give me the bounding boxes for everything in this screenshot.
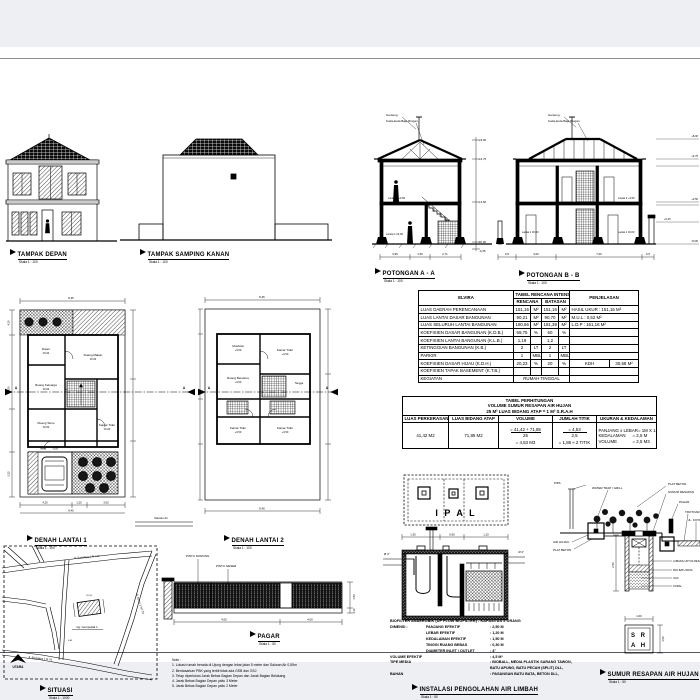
section-marker-icon xyxy=(10,249,16,255)
dim-label: 5,25 xyxy=(7,471,11,477)
view-title-text: DENAH LANTAI 1 xyxy=(35,538,87,546)
road-label: Jl. Asem 1 N / 23 xyxy=(135,593,145,615)
label-genteng: Genteng xyxy=(548,113,560,117)
ipal-plan-svg: I P A L xyxy=(400,471,512,529)
view-scale-text: Skala 1 : 50 xyxy=(259,643,280,647)
table-cell: M² xyxy=(559,306,570,314)
ipal-plan-drawing: I P A L xyxy=(400,471,512,529)
table-cell: 1,2 xyxy=(542,337,559,345)
fence-elevation-drawing: PINTU DORONG PINTU GESER 4,00 4,00 1,50 … xyxy=(160,545,375,637)
table-cell: M² xyxy=(559,321,570,329)
dim-label: 7,00 xyxy=(596,252,602,256)
road-label: Jl. Swadaya 1 N / 14 xyxy=(74,554,100,560)
table-cell: LUAS SELURUH LANTAI BANGUNAN xyxy=(419,321,514,329)
site-notes-block: Note : 1. Lokasi rumah berada di Ujung d… xyxy=(172,658,306,690)
footing-icon xyxy=(634,237,646,244)
section-marker-icon xyxy=(27,535,33,541)
north-label: UTARA xyxy=(13,665,25,669)
dim-label: 0,5 xyxy=(646,252,650,256)
section-a-drawing: Genteng Kuda-kuda Baja Ringan +8,00 +6,7… xyxy=(372,109,494,271)
table-cell: % xyxy=(559,329,570,337)
dim-label: 1,50 xyxy=(417,252,423,256)
view-title-denah2: DENAH LANTAI 2 Skala 1 : 100 xyxy=(224,529,284,550)
section-marker-icon xyxy=(600,669,606,675)
table-cell: LUAS LANTAI DASAR BANGUNAN xyxy=(419,314,514,322)
view-title-denah1: DENAH LANTAI 1 Skala 1 : 100 xyxy=(27,529,87,550)
table-cell: 30,58 M² xyxy=(610,360,639,368)
fraction-denominator: 25 xyxy=(511,432,541,439)
room-elev: +3,50 xyxy=(235,430,242,434)
leader-label: LOBANG UNTUK RESAPAN xyxy=(673,559,700,563)
dim-label: 4,00 xyxy=(307,618,313,622)
dim-label: 0,30 xyxy=(353,608,356,613)
footing-icon xyxy=(552,237,564,244)
dim-label: 1,50 xyxy=(352,594,356,600)
footing-icon xyxy=(592,237,604,244)
ukuran-val: = 2,5 M3 xyxy=(633,439,650,445)
srah-plan-letters: A H xyxy=(631,643,647,649)
srah-volume-table: TABEL PERHITUNGAN VOLUME SUMUR RESAPAN A… xyxy=(402,396,657,449)
table-header-cell: BATASAN xyxy=(542,298,570,306)
gate-label: PINTU DORONG xyxy=(186,554,210,558)
section-marker-icon xyxy=(412,684,418,690)
dim-label: 3,00 xyxy=(533,252,539,256)
dim-label: 2,71 xyxy=(442,252,448,256)
saluran-air-label: Saluran Air xyxy=(154,516,168,520)
drawing-sheet: Genteng Kuda-kuda Baja Ringan +8,00 +6,7… xyxy=(0,47,700,662)
site-plan-svg: Jl. Swadaya 1 N / 14 Jl. Asem 1 N / 23 J… xyxy=(2,542,168,687)
section-cut-letter: A xyxy=(326,386,329,390)
level-label: +8,00 xyxy=(691,134,698,138)
room-elev: ±0,00 xyxy=(43,387,50,391)
dim-label: 4,20 xyxy=(7,320,11,326)
biofilter-spec-block: BIOFILTER ANAEROBIK (UP FLOW BIOFILTER) … xyxy=(390,619,618,678)
room-label: Ruang Keluarga xyxy=(35,383,57,387)
leader-label: PIPA xyxy=(554,481,561,485)
table-cell xyxy=(559,337,570,345)
table-cell: KOEFISIEN TAPAK BASEMENT (K.T.B.) xyxy=(419,367,514,375)
room-label: Mushola xyxy=(232,344,244,348)
right-side-elevation-svg xyxy=(120,125,335,255)
view-title-text: POTONGAN A - A xyxy=(383,271,435,279)
dim-label: 2,50 xyxy=(611,562,615,568)
room-label: Dapur xyxy=(42,347,50,351)
room-elev: +3,50 xyxy=(282,430,289,434)
room-elev: -0,05 xyxy=(52,448,58,451)
intensity-table: ELVIRA TABEL RENCANA INTENSITAS PENJELAS… xyxy=(418,290,639,383)
table-cell: LT xyxy=(559,344,570,352)
view-title-tampak-samping: TAMPAK SAMPING KANAN Skala 1 : 100 xyxy=(140,243,229,264)
table-cell xyxy=(570,344,639,352)
table-cell: 20,23 xyxy=(514,360,531,368)
section-cut-letter: A xyxy=(15,386,18,390)
table-cell: KOEFISIEN LANTAI BANGUNAN (K.L.B.) xyxy=(419,337,514,345)
fraction-denominator: 2,5 xyxy=(563,432,587,439)
leader-label: PLAT BETON xyxy=(553,548,571,552)
view-title-text: POTONGAN B - B xyxy=(527,273,580,281)
site-plan-drawing: Jl. Swadaya 1 N / 14 Jl. Asem 1 N / 23 J… xyxy=(2,542,168,687)
srah-plan-letters: S R xyxy=(631,633,647,639)
dim-label: 8,45 xyxy=(68,509,74,513)
table-header-cell: VOLUME xyxy=(499,415,553,423)
table-cell: 90,70 xyxy=(542,314,559,322)
table-cell: % xyxy=(559,360,570,368)
table-cell xyxy=(570,352,639,360)
dim-label: 0,60 xyxy=(449,533,455,537)
view-title-tampak-depan: TAMPAK DEPAN Skala 1 : 100 xyxy=(10,243,67,264)
room-elev: +3,50 xyxy=(235,380,242,384)
section-cut-letter: A xyxy=(208,386,211,390)
label-lantai2: Lantai 2 +3,50 xyxy=(388,196,406,200)
view-scale-text: Skala 1 : 100 xyxy=(36,547,87,551)
table-cell: KETINGGIAN BANGUNAN (K.B.) xyxy=(419,344,514,352)
dim-label: 8,45 xyxy=(259,507,265,511)
screenshot-canvas: Genteng Kuda-kuda Baja Ringan +8,00 +6,7… xyxy=(0,0,700,700)
pipe-label: Ø 4" xyxy=(518,550,524,554)
dim-label: 1,30 xyxy=(410,533,416,537)
floor-plan-2-drawing: Mushola +3,50 Kamar Tidur +3,50 Ruang Be… xyxy=(198,289,338,534)
table-cell: KOEFISIEN DASAR BANGUNAN (K.D.B.) xyxy=(419,329,514,337)
room-label: Ruang Tamu xyxy=(38,421,55,425)
north-arrow-icon xyxy=(10,654,26,663)
view-title-text: INSTALASI PENGOLAHAN AIR LIMBAH xyxy=(420,687,539,695)
front-elevation-drawing xyxy=(5,125,120,255)
table-cell: 60 xyxy=(542,329,559,337)
room-label: Teras xyxy=(40,447,47,451)
gate-label: PINTU GESER xyxy=(216,564,237,568)
dim-label: 4,20 xyxy=(42,501,48,505)
table-cell: 59,75 xyxy=(514,329,531,337)
table-cell: M² xyxy=(531,321,542,329)
level-label: ±0,00 xyxy=(692,239,699,243)
view-scale-text: Skala 1 : 100 xyxy=(149,261,229,265)
room-elev: ±0,00 xyxy=(90,357,97,361)
table-cell: 2 xyxy=(542,344,559,352)
dim-label: 9,00 xyxy=(7,386,11,392)
label-lantai1: Lantai 1 ±0,00 xyxy=(522,230,539,234)
table-header-cell: JUMLAH TITIK xyxy=(553,415,597,423)
table-cell: 71,85 M2 xyxy=(449,423,499,449)
table-cell xyxy=(514,367,531,375)
leader-label: JL. KOTA xyxy=(688,518,700,522)
table-cell: M.U.L : 0,52 M² xyxy=(570,314,639,322)
dim-label: 1,00 xyxy=(661,636,665,642)
table-cell: MBL xyxy=(531,352,542,360)
table-title-line: 25 M² LUAS BIDANG ATAP = 1 M³ S.R.A.H xyxy=(405,409,655,415)
table-cell: = 41,42 + 71,85 25 = 4,53 M3 xyxy=(499,423,553,449)
leader-label: KORAL xyxy=(673,584,682,588)
dim-label: 8,45 xyxy=(68,296,74,300)
view-title-text: DENAH LANTAI 2 xyxy=(232,538,284,546)
view-title-text: PAGAR xyxy=(258,634,280,642)
section-cut-letter: A xyxy=(183,386,186,390)
label-kuda-kuda: Kuda-kuda Baja Ringan xyxy=(548,119,580,123)
table-cell: KEGIATAN xyxy=(419,375,514,383)
table-cell: 90,21 xyxy=(514,314,531,322)
view-scale-text: Skala 1 : 100 xyxy=(19,261,67,265)
room-label: Kamar Tidur xyxy=(277,426,293,430)
table-cell: L.D.P : 151,16 M² xyxy=(570,321,639,329)
table-cell: 1,19 xyxy=(514,337,531,345)
table-cell xyxy=(559,367,570,375)
sheet-top-rule xyxy=(0,58,700,59)
table-cell: % xyxy=(531,329,542,337)
label-genteng: Genteng xyxy=(386,113,398,117)
ukuran-name: VOLUME xyxy=(599,439,633,445)
table-cell xyxy=(542,367,559,375)
table-cell: KOEFISIEN DASAR HIJAU (K.D.H.) xyxy=(419,360,514,368)
view-scale-text: Skala 1 : 100 xyxy=(233,547,284,551)
table-cell: RUMAH TINGGAL xyxy=(514,375,570,383)
person-icon xyxy=(45,219,50,233)
section-marker-icon xyxy=(519,270,525,276)
front-elevation-svg xyxy=(5,125,120,255)
section-marker-icon xyxy=(250,631,256,637)
label-lantai1: Lantai 1 ±0,00 xyxy=(386,232,404,236)
fraction-numerator: = 41,42 + 71,85 xyxy=(501,427,551,433)
room-label: Tangga xyxy=(295,381,304,385)
ipal-section-svg: 1,30 0,60 1,10 Ø 4" Ø 4" xyxy=(383,523,525,625)
leader-label: WATER TRAP / GRILL xyxy=(592,486,623,490)
table-cell: MBL xyxy=(559,352,570,360)
view-title-text: TAMPAK DEPAN xyxy=(18,252,67,260)
view-scale-text: Skala 1 : 100 xyxy=(528,282,580,286)
table-header-cell: UKURAN & KEDALAMAN xyxy=(597,415,657,423)
room-label: Ruang Makan xyxy=(84,353,103,357)
section-a-svg: Genteng Kuda-kuda Baja Ringan +8,00 +6,7… xyxy=(372,109,494,271)
table-cell xyxy=(570,329,639,337)
table-cell xyxy=(531,337,542,345)
leader-label: PAS BATU BATA xyxy=(673,568,693,572)
dim-label: 0,5 xyxy=(505,252,509,256)
table-cell xyxy=(570,337,639,345)
table-cell: M² xyxy=(559,314,570,322)
section-marker-icon xyxy=(40,685,46,691)
table-title-cell: TABEL PERHITUNGAN VOLUME SUMUR RESAPAN A… xyxy=(403,397,657,416)
table-cell: 2 xyxy=(514,344,531,352)
leader-label: PLAT BETON xyxy=(668,482,686,486)
dim-label: 1,25 xyxy=(76,501,82,505)
room-elev: ±0,00 xyxy=(104,427,111,431)
vent-icon xyxy=(231,174,236,179)
table-cell: 20 xyxy=(542,360,559,368)
view-title-potongan-a: POTONGAN A - A Skala 1 : 100 xyxy=(375,262,435,283)
fraction-result: = 1,86 ≈ 2 TITIK xyxy=(555,440,595,446)
pipe-label: Ø 4" xyxy=(384,552,390,556)
room-elev: ±0,00 xyxy=(43,351,50,355)
table-cell: LT xyxy=(531,344,542,352)
table-cell: 151,16 xyxy=(514,306,531,314)
section-b-svg: Genteng Kuda-kuda Baja Ringan +8,00 +6,7… xyxy=(496,109,700,271)
table-cell: 1 xyxy=(514,352,531,360)
view-scale-text: Skala 1 : 1000 xyxy=(49,697,73,700)
view-title-text: SITUASI xyxy=(48,688,73,696)
table-cell: PARKIR xyxy=(419,352,514,360)
floor-plan-2-svg: Mushola +3,50 Kamar Tidur +3,50 Ruang Be… xyxy=(198,289,338,534)
footing-icon xyxy=(376,237,388,244)
table-cell xyxy=(531,367,542,375)
section-marker-icon xyxy=(224,535,230,541)
plants-icon xyxy=(594,509,659,528)
view-title-ipal: INSTALASI PENGOLAHAN AIR LIMBAH Skala 1 … xyxy=(412,678,538,699)
table-cell: M² xyxy=(531,306,542,314)
level-label: +3,50 xyxy=(479,200,487,204)
table-cell: 181,39 xyxy=(542,321,559,329)
footing-icon xyxy=(496,238,504,244)
view-scale-text: Skala 1 : 50 xyxy=(421,696,538,700)
table-cell: 1 xyxy=(542,352,559,360)
level-label: ±0,00 xyxy=(479,240,486,244)
level-label: +8,00 xyxy=(479,138,487,142)
table-corner-cell: ELVIRA xyxy=(419,291,514,306)
label-kuda-kuda: Kuda-kuda Baja Ringan xyxy=(386,119,418,123)
leader-label: AIR HUJAN xyxy=(553,540,569,544)
room-label: Kamar Tidur xyxy=(99,423,115,427)
table-cell xyxy=(570,367,639,375)
level-label: +6,75 xyxy=(479,157,487,161)
view-title-pagar: PAGAR Skala 1 : 50 xyxy=(250,625,280,646)
view-scale-text: Skala 1 : 50 xyxy=(609,681,699,685)
table-cell: = 4,53 2,5 = 1,86 ≈ 2 TITIK xyxy=(553,423,597,449)
view-title-text: SUMUR RESAPAN AIR HUJAN xyxy=(608,672,699,680)
alley-label: Gg. Gempedak 1 xyxy=(76,625,98,629)
footing-icon xyxy=(420,237,432,244)
label-lantai1: Lantai 1 ±0,00 xyxy=(618,230,635,234)
note-item: 1. Lokasi rumah berada di Ujung dengan l… xyxy=(172,663,306,668)
room-elev: ±0,00 xyxy=(43,425,50,429)
room-elev: +3,50 xyxy=(235,348,242,352)
dim-label: 4,00 xyxy=(221,618,227,622)
fraction-result: = 4,53 M3 xyxy=(501,440,551,446)
table-header-cell: LUAS BIDANG ATAP xyxy=(449,415,499,423)
level-label: +0,45 xyxy=(664,217,671,221)
dim-label: 3,00 xyxy=(103,501,109,505)
note-item: 5. Jarak Bebas Bagian Depan yaitu 2 Mete… xyxy=(172,684,306,689)
table-cell: KDH xyxy=(570,360,610,368)
table-header-cell: PENJELASAN xyxy=(570,291,639,306)
view-title-situasi: SITUASI Skala 1 : 1000 xyxy=(40,679,73,700)
view-title-srah: SUMUR RESAPAN AIR HUJAN Skala 1 : 50 xyxy=(600,663,699,684)
car-icon xyxy=(42,457,67,491)
table-header-cell: LUAS PERKERASAN xyxy=(403,415,449,423)
room-label: Kamar Tidur xyxy=(277,348,293,352)
level-label: +3,50 xyxy=(691,197,698,201)
table-cell: HASIL UKUR : 151,16 M² xyxy=(570,306,639,314)
view-scale-text: Skala 1 : 100 xyxy=(384,280,435,284)
table-cell: LUAS DAERAH PERENCANAAN xyxy=(419,306,514,314)
floor-plan-1-svg: Dapur ±0,00 Ruang Makan ±0,00 Ruang Kelu… xyxy=(5,289,195,534)
person-icon xyxy=(407,221,413,244)
ipal-section-drawing: 1,30 0,60 1,10 Ø 4" Ø 4" xyxy=(383,523,525,625)
table-cell: 41,42 M2 xyxy=(403,423,449,449)
floor-plan-1-drawing: Dapur ±0,00 Ruang Makan ±0,00 Ruang Kelu… xyxy=(5,289,195,534)
dim-label: 20,34 xyxy=(86,595,92,597)
dim-label: 1,00 xyxy=(636,614,642,618)
fraction-numerator: = 4,53 xyxy=(555,427,595,433)
leader-label: SUMUR RESAPAN xyxy=(668,490,694,494)
ipal-label: I P A L xyxy=(435,508,476,518)
leader-label: TROTOAR xyxy=(685,510,700,514)
dim-label: 1,10 xyxy=(483,533,489,537)
label-lantai2: Lantai 2 +3,50 xyxy=(618,196,635,200)
table-header-cell: RENCANA xyxy=(514,298,542,306)
table-cell: 151,16 xyxy=(542,306,559,314)
footing-icon xyxy=(512,237,524,244)
room-label: Kamar Tidur xyxy=(230,426,246,430)
dim-label: 3,95 xyxy=(392,252,398,256)
room-elev: +3,50 xyxy=(282,352,289,356)
table-cell: PANJANG x LEBAR= 1M X 1M KEDALAMAN= 2,5 … xyxy=(597,423,657,449)
leader-label: PAGAR xyxy=(679,500,690,504)
section-marker-icon xyxy=(140,249,146,255)
room-label: Ruang Bersama xyxy=(227,376,249,380)
section-b-drawing: Genteng Kuda-kuda Baja Ringan +8,00 +6,7… xyxy=(496,109,700,271)
table-header-cell: TABEL RENCANA INTENSITAS xyxy=(514,291,570,299)
level-label: +6,75 xyxy=(691,154,698,158)
section-marker-icon xyxy=(375,268,381,274)
table-cell: % xyxy=(531,360,542,368)
leader-label: IJUK xyxy=(673,576,679,580)
view-title-potongan-b: POTONGAN B - B Skala 1 : 100 xyxy=(519,264,580,285)
level-label: -0,45 xyxy=(479,249,486,253)
right-side-elevation-drawing xyxy=(120,125,335,255)
dim-label: 8,45 xyxy=(259,295,265,299)
view-title-text: TAMPAK SAMPING KANAN xyxy=(148,252,230,260)
table-cell: 180,66 xyxy=(514,321,531,329)
dim-label: 6,65 xyxy=(68,640,73,642)
table-cell xyxy=(570,375,639,383)
fence-elevation-svg: PINTU DORONG PINTU GESER 4,00 4,00 1,50 … xyxy=(160,545,375,637)
table-cell: M² xyxy=(531,314,542,322)
footing-icon xyxy=(454,237,466,244)
